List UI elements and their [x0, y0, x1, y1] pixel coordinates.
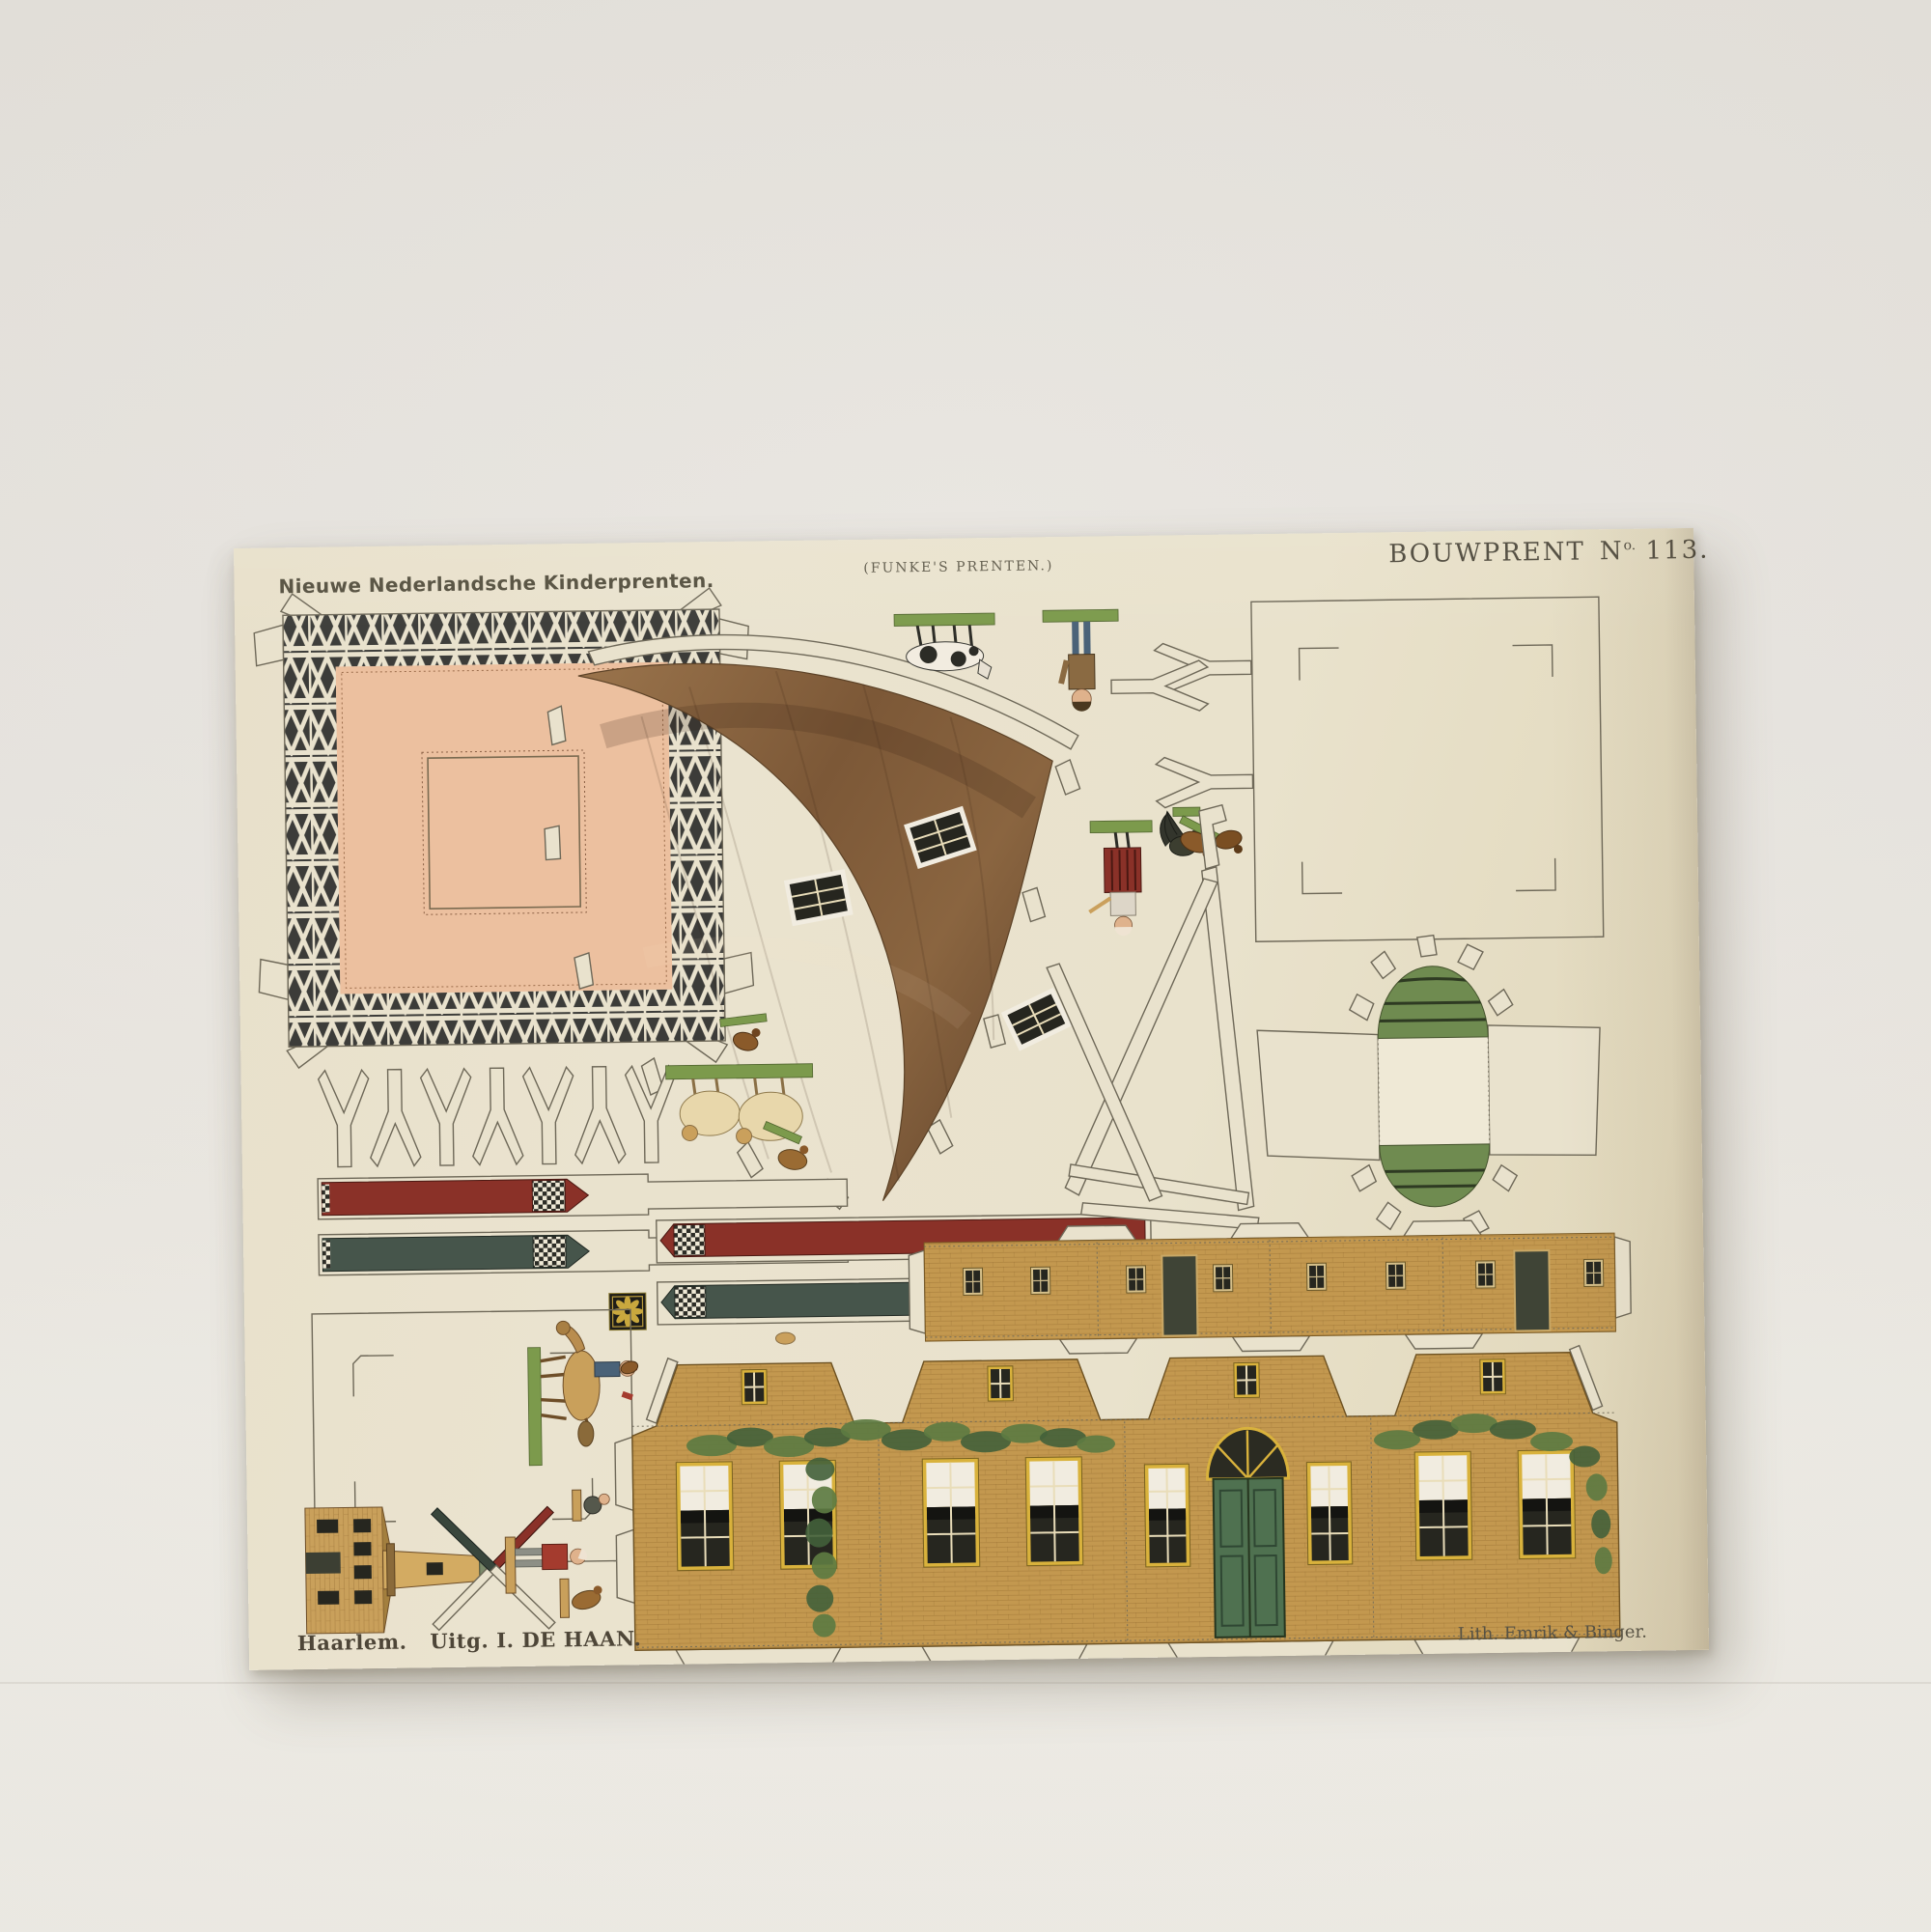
piece-rosette-tile — [609, 1293, 647, 1330]
header-imprint: (FUNKE'S PRENTEN.) — [863, 558, 1053, 576]
figure-duck-cutout — [560, 1579, 602, 1618]
plate-no-sup: o. — [1623, 538, 1636, 553]
plate-no: N — [1600, 537, 1624, 566]
piece-tailpole-trestle — [1045, 804, 1259, 1232]
piece-lattice-base-platform — [254, 588, 755, 1069]
header-plate-title: BOUWPRENT No. 113. — [1388, 536, 1710, 570]
figure-woman-cutout — [1088, 821, 1154, 937]
piece-building-facade — [614, 1345, 1620, 1670]
footer-lithographer: Lith. Emrik & Binger. — [1458, 1622, 1647, 1645]
figure-boy-cutout — [1043, 609, 1119, 712]
piece-sail-braces-cluster — [1110, 642, 1252, 808]
piece-sail-vane-red-left — [318, 1171, 848, 1219]
facade-door — [1207, 1428, 1291, 1638]
footer-publisher: Haarlem. Uitg. I. DE HAAN. — [297, 1626, 642, 1655]
paper-sheet: Nieuwe Nederlandsche Kinderprenten. (FUN… — [234, 528, 1709, 1670]
sheet-artwork — [234, 528, 1709, 1670]
plate-word: BOUWPRENT — [1388, 537, 1585, 569]
wall-floor-seam — [0, 1682, 1931, 1684]
figure-seated-cutout — [573, 1490, 610, 1522]
piece-windmill-cap — [1256, 933, 1603, 1248]
illustration-finished-windmill — [305, 1504, 555, 1634]
plate-number: 113. — [1645, 536, 1709, 566]
figure-bird-cutout — [719, 1014, 767, 1054]
piece-sail-braces-row — [319, 1066, 677, 1167]
photo-scene: Nieuwe Nederlandsche Kinderprenten. (FUN… — [0, 0, 1931, 1932]
piece-blank-panel — [1251, 597, 1604, 941]
